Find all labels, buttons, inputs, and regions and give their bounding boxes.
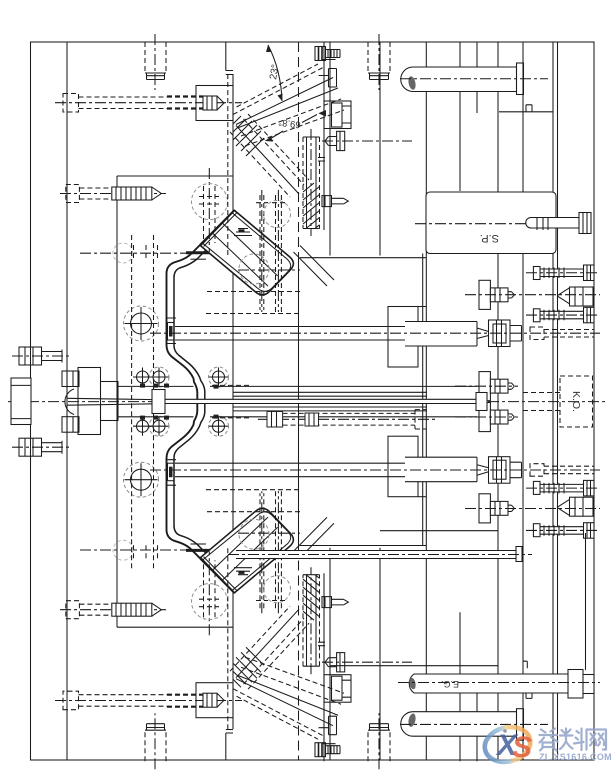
svg-text:ZL.XS1616.COM: ZL.XS1616.COM bbox=[539, 752, 612, 762]
svg-text:E.G.: E.G. bbox=[441, 679, 459, 689]
svg-text:K.O.: K.O. bbox=[570, 391, 582, 412]
svg-text:S.P.: S.P. bbox=[480, 232, 499, 244]
svg-text:S: S bbox=[512, 731, 532, 764]
